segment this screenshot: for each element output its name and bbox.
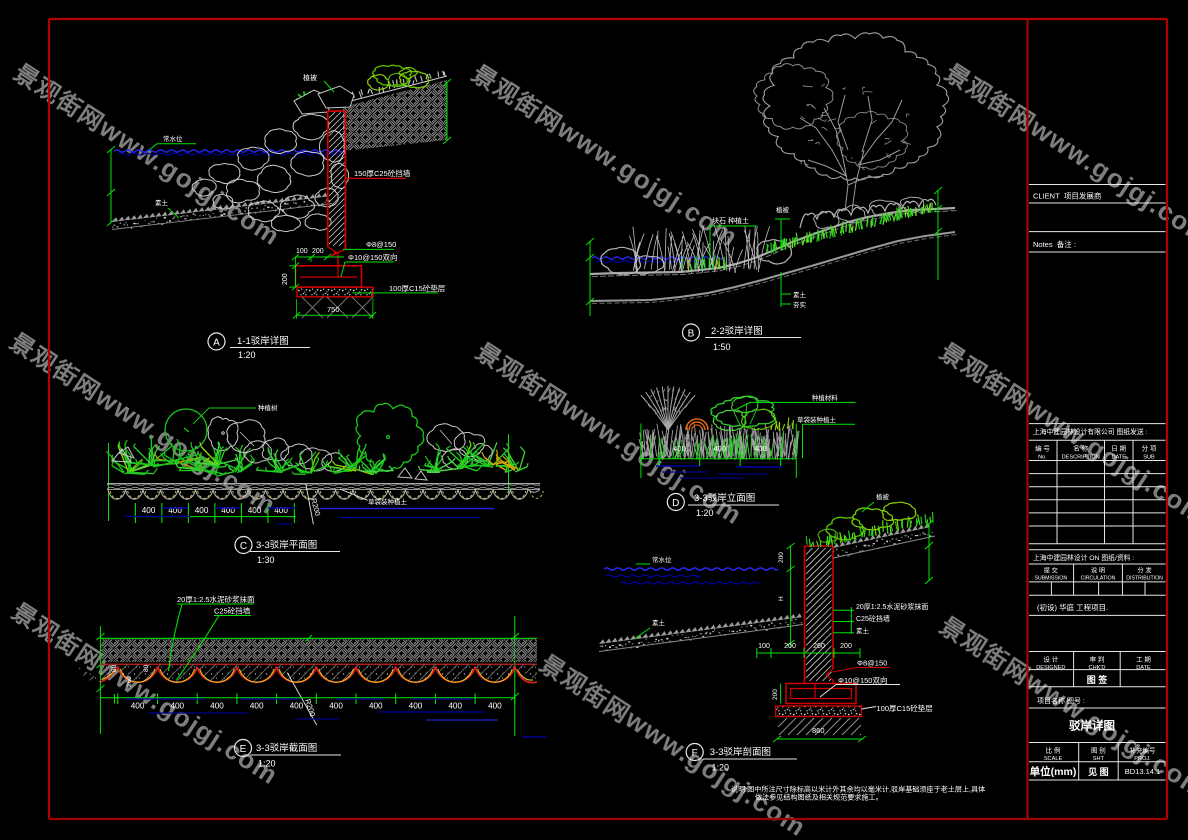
svg-text:BD13.14.1: BD13.14.1: [1125, 767, 1160, 776]
svg-text:100厚C15砼垫层: 100厚C15砼垫层: [389, 283, 446, 293]
svg-text:Notes 备注 :: Notes 备注 :: [1033, 239, 1076, 249]
svg-text:种植材料: 种植材料: [812, 393, 839, 402]
svg-text:草袋装种植土: 草袋装种植土: [797, 415, 837, 424]
svg-text:1-1驳岸详图: 1-1驳岸详图: [237, 335, 289, 347]
svg-text:400: 400: [248, 506, 262, 515]
svg-text:C25砼挡墙: C25砼挡墙: [856, 614, 890, 623]
svg-text:3-3驳岸平面图: 3-3驳岸平面图: [256, 540, 317, 551]
svg-text:Φ10@150双向: Φ10@150双向: [838, 675, 887, 685]
svg-text:名 称: 名 称: [1073, 444, 1088, 453]
svg-text:D: D: [672, 498, 679, 509]
svg-text:说 明: 说 明: [1091, 567, 1105, 575]
svg-text:DISTRIBUTION: DISTRIBUTION: [1126, 576, 1163, 582]
svg-text:2-2驳岸详图: 2-2驳岸详图: [711, 325, 763, 337]
svg-text:3-3驳岸立面图: 3-3驳岸立面图: [694, 492, 755, 504]
svg-text:400: 400: [250, 701, 264, 710]
svg-text:审 判: 审 判: [1090, 655, 1105, 664]
svg-text:项目名称 图号 :: 项目名称 图号 :: [1037, 696, 1085, 705]
svg-text:编 号: 编 号: [1035, 444, 1050, 453]
svg-text:400: 400: [195, 506, 209, 515]
svg-text:400: 400: [488, 701, 502, 710]
svg-text:400: 400: [448, 701, 462, 710]
svg-text:植被: 植被: [303, 73, 317, 82]
svg-text:SCALE: SCALE: [1044, 756, 1063, 762]
svg-text:E: E: [240, 744, 247, 755]
svg-text:100: 100: [758, 643, 770, 650]
svg-text:素土: 素土: [856, 626, 870, 635]
svg-text:F: F: [692, 748, 698, 759]
svg-text:Φ8@150: Φ8@150: [366, 240, 396, 249]
svg-text:No.: No.: [1038, 455, 1047, 461]
svg-text:3-3驳岸截面图: 3-3驳岸截面图: [256, 742, 317, 754]
svg-text:块石 种植土: 块石 种植土: [712, 216, 749, 225]
svg-text:种植树: 种植树: [258, 403, 278, 412]
svg-text:单位(mm): 单位(mm): [1030, 765, 1077, 778]
svg-text:分 发: 分 发: [1138, 567, 1152, 575]
svg-text:260: 260: [126, 676, 133, 687]
svg-text:常水位: 常水位: [652, 555, 672, 564]
svg-text:400: 400: [290, 701, 304, 710]
svg-text:1:50: 1:50: [713, 342, 731, 352]
svg-text:PROJ.: PROJ.: [1134, 756, 1151, 762]
svg-text:植被: 植被: [876, 492, 890, 501]
svg-text:说明:图中所注尺寸除标高以米计外其余均以毫米计,驳岸基础须座: 说明:图中所注尺寸除标高以米计外其余均以毫米计,驳岸基础须座于老土层上,具体: [731, 785, 985, 794]
svg-text:1:20: 1:20: [238, 350, 256, 360]
svg-text:常水位: 常水位: [163, 134, 183, 143]
svg-text:图 签: 图 签: [1087, 674, 1109, 685]
svg-text:Φ10@150双向: Φ10@150双向: [348, 252, 397, 262]
svg-text:750: 750: [327, 305, 340, 314]
svg-text:夯实: 夯实: [793, 300, 807, 309]
svg-text:植被: 植被: [776, 205, 790, 214]
svg-text:SHT: SHT: [1093, 756, 1105, 762]
svg-text:C: C: [240, 541, 247, 552]
svg-text:SUB: SUB: [1143, 455, 1155, 461]
svg-text:见 图: 见 图: [1088, 767, 1109, 777]
svg-text:CIRCULATION: CIRCULATION: [1081, 576, 1116, 582]
svg-text:草袋装种植土: 草袋装种植土: [368, 497, 408, 506]
svg-text:分 项: 分 项: [1142, 444, 1157, 453]
svg-text:3-3驳岸剖面图: 3-3驳岸剖面图: [710, 746, 771, 758]
svg-text:20厚1:2.5水泥砂浆抹面: 20厚1:2.5水泥砂浆抹面: [177, 594, 255, 604]
svg-text:150厚C25砼挡墙: 150厚C25砼挡墙: [354, 168, 411, 178]
svg-text:Φ8@150: Φ8@150: [857, 659, 887, 668]
svg-text:400: 400: [754, 444, 767, 453]
svg-text:素土: 素土: [793, 290, 807, 299]
svg-text:上海中建园林设计 ON 图纸/资料 :: 上海中建园林设计 ON 图纸/资料 :: [1033, 553, 1134, 562]
svg-text:驳岸详图: 驳岸详图: [1069, 719, 1115, 733]
svg-text:图 别: 图 别: [1091, 746, 1106, 755]
svg-text:260: 260: [813, 643, 825, 650]
svg-text:日 期: 日 期: [1111, 445, 1126, 453]
svg-text:1:20: 1:20: [712, 763, 730, 773]
svg-text:A: A: [213, 338, 220, 349]
svg-text:设 计: 设 计: [1043, 655, 1058, 664]
svg-text:20厚1:2.5水泥砂浆抹面: 20厚1:2.5水泥砂浆抹面: [856, 602, 928, 611]
svg-text:200: 200: [772, 689, 779, 700]
svg-text:400: 400: [714, 444, 727, 453]
svg-text:C25砼挡墙: C25砼挡墙: [214, 606, 251, 616]
svg-text:H: H: [778, 596, 785, 601]
svg-text:工 期: 工 期: [1136, 656, 1151, 664]
svg-text:上海中建园林设计有限公司 图纸发送 :: 上海中建园林设计有限公司 图纸发送 :: [1033, 427, 1148, 436]
svg-text:80: 80: [143, 664, 150, 672]
svg-text:200: 200: [840, 643, 852, 650]
svg-text:1:20: 1:20: [258, 759, 276, 769]
svg-text:200: 200: [282, 273, 289, 285]
svg-text:200: 200: [312, 248, 324, 255]
svg-text:400: 400: [673, 444, 686, 453]
svg-text:素土: 素土: [652, 618, 666, 627]
svg-text:400: 400: [142, 506, 156, 515]
svg-text:DESCRIPTION: DESCRIPTION: [1062, 455, 1100, 461]
svg-text:B: B: [688, 329, 695, 340]
svg-text:400: 400: [329, 701, 343, 710]
svg-text:400: 400: [409, 701, 423, 710]
svg-text:860: 860: [812, 726, 825, 735]
svg-text:400: 400: [210, 701, 224, 710]
svg-text:SUBMISSION: SUBMISSION: [1035, 576, 1068, 582]
svg-text:200: 200: [778, 552, 785, 563]
svg-text:1:20: 1:20: [696, 508, 714, 518]
svg-text:400: 400: [369, 701, 383, 710]
svg-text:1:30: 1:30: [257, 555, 275, 565]
svg-text:400: 400: [170, 701, 184, 710]
svg-text:CLIENT 项目发展商: CLIENT 项目发展商: [1033, 191, 1102, 201]
svg-text:400: 400: [131, 701, 145, 710]
svg-text:DATE: DATE: [1111, 455, 1126, 461]
svg-text:100: 100: [296, 248, 308, 255]
svg-text:80: 80: [111, 664, 118, 672]
svg-text:补充编号: 补充编号: [1130, 746, 1157, 755]
svg-text:提 交: 提 交: [1044, 567, 1058, 575]
svg-text:做法参见结构图纸及相关规范要求施工。: 做法参见结构图纸及相关规范要求施工。: [755, 793, 883, 802]
svg-text:比 例: 比 例: [1046, 746, 1061, 755]
svg-text:素土: 素土: [155, 198, 169, 207]
svg-text:100厚C15砼垫层: 100厚C15砼垫层: [877, 703, 934, 713]
svg-text:200: 200: [784, 643, 796, 650]
svg-text:(初设) 华庭 工程项目.: (初设) 华庭 工程项目.: [1037, 602, 1108, 612]
